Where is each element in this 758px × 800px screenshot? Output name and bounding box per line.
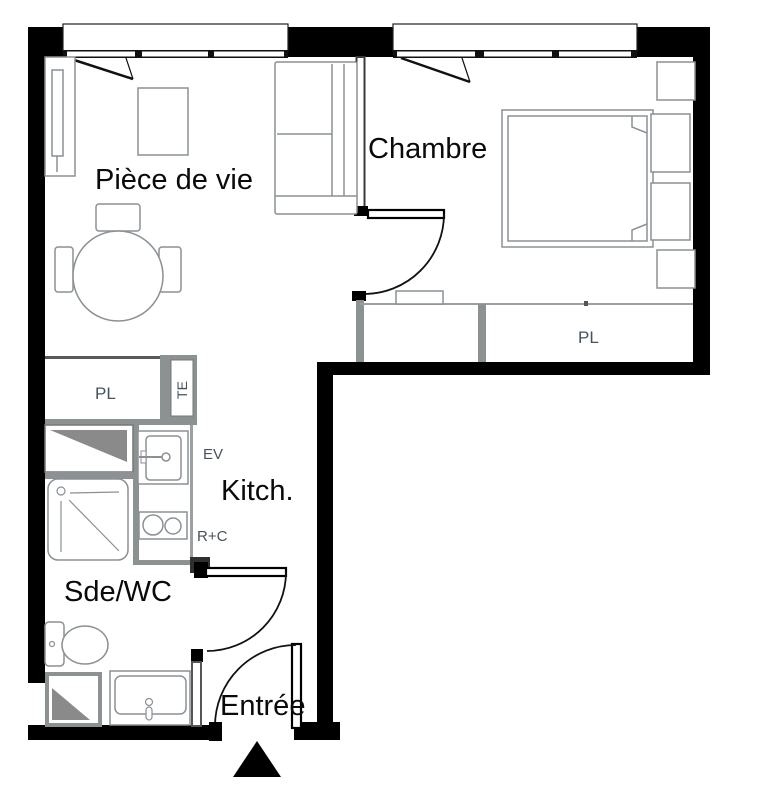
- bed-pillow: [651, 183, 690, 240]
- dining-chair-left: [55, 247, 73, 292]
- bedroom-bench: [396, 291, 443, 304]
- wall-left: [28, 27, 45, 683]
- annotation-ev: EV: [203, 447, 223, 462]
- nightstand-top: [657, 62, 695, 100]
- room-label-piece-de-vie: Pièce de vie: [95, 166, 253, 195]
- closet-bedroom: [360, 301, 693, 362]
- window-bay-bedroom: [393, 24, 637, 51]
- partition-wall-lower: [356, 300, 364, 362]
- window-pane: [397, 52, 475, 57]
- annotation-pl-bedroom: PL: [578, 329, 599, 346]
- window-pane: [214, 52, 284, 57]
- window-pane: [559, 52, 631, 57]
- door-jamb: [191, 649, 203, 662]
- window-bay-living: [63, 24, 288, 51]
- casement-open-pane: [68, 58, 133, 79]
- closet-front-line: [45, 356, 160, 359]
- wall-top-middle: [288, 27, 393, 57]
- annotation-rc: R+C: [197, 529, 227, 544]
- annotation-te: TE: [175, 375, 189, 405]
- bed-mattress: [508, 116, 647, 241]
- window-pane: [67, 52, 135, 57]
- bed-pillow: [651, 114, 690, 172]
- partition-bath-entry: [192, 662, 201, 726]
- wall-bedroom-bottom: [318, 362, 710, 375]
- counter-edge: [190, 425, 193, 563]
- wall-bottom-left: [28, 725, 222, 740]
- floor-plan: Pièce de vie Chambre Kitch. Sde/WC Entré…: [0, 0, 758, 800]
- vanity-faucet: [146, 707, 152, 720]
- bedroom-door-leaf: [368, 210, 444, 218]
- vanity-faucet-head: [146, 699, 153, 706]
- nightstand-bottom: [657, 250, 695, 288]
- bathroom-door-leaf: [206, 568, 286, 576]
- window-pane: [484, 52, 552, 57]
- casement-open-pane: [401, 58, 470, 82]
- faucet-head: [162, 453, 170, 461]
- dining-chair-top: [96, 204, 140, 231]
- window-bedroom: [393, 24, 637, 82]
- annotation-pl-left: PL: [95, 385, 116, 402]
- entrance-arrow: [233, 741, 281, 777]
- bedroom-door-swing-arc: [364, 214, 444, 294]
- door-jamb: [209, 722, 222, 741]
- side-table: [138, 88, 188, 155]
- room-label-entree: Entrée: [220, 692, 305, 721]
- counter-bottom-edge: [133, 560, 197, 565]
- closet-mark: [584, 301, 588, 306]
- door-jamb: [352, 291, 366, 301]
- cooktop-burner-small: [165, 518, 181, 534]
- window-living-room: [63, 24, 288, 79]
- partition-horizontal: [45, 419, 197, 425]
- closet-divider: [478, 304, 486, 362]
- room-label-kitchen: Kitch.: [221, 477, 294, 506]
- wall-middle-vertical: [317, 362, 333, 740]
- partition-horizontal: [45, 472, 133, 479]
- room-label-sde-wc: Sde/WC: [64, 578, 172, 607]
- bathroom-door-swing-arc: [207, 572, 286, 651]
- room-label-chambre: Chambre: [368, 135, 487, 164]
- toilet-bowl: [62, 626, 108, 664]
- bedroom-furniture: [396, 62, 695, 304]
- tv-screen: [52, 70, 63, 156]
- window-pane: [142, 52, 208, 57]
- toilet-flush-button: [50, 642, 55, 647]
- cooktop-burner-large: [143, 515, 163, 535]
- partition-living-bedroom: [352, 57, 444, 362]
- kitchen-block: [133, 425, 210, 573]
- shower-drain: [57, 487, 65, 495]
- dining-table: [73, 231, 163, 321]
